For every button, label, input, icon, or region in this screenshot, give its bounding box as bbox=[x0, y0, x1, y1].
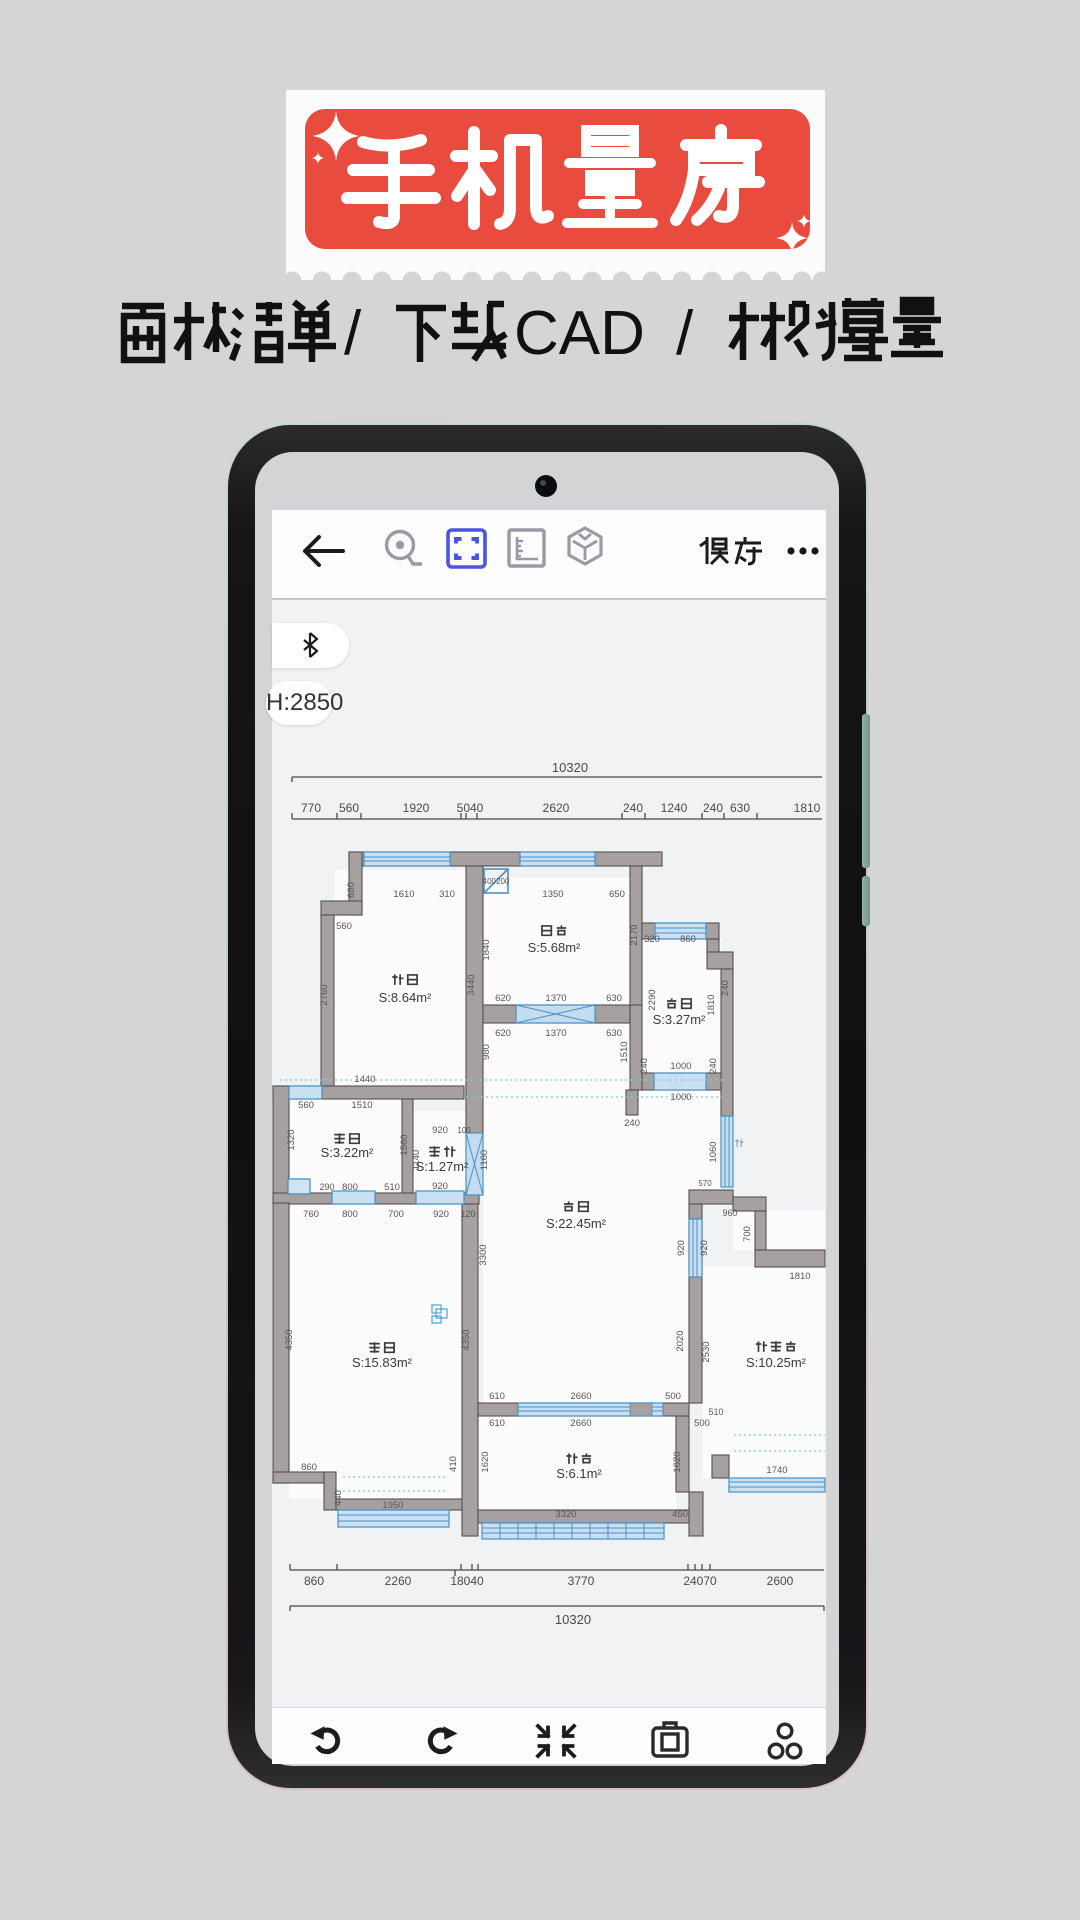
svg-text:1920: 1920 bbox=[403, 801, 430, 815]
svg-text:1060: 1060 bbox=[708, 1141, 719, 1162]
svg-text:410: 410 bbox=[448, 1456, 459, 1472]
svg-text:400200: 400200 bbox=[483, 877, 510, 886]
svg-text:S:22.45m²: S:22.45m² bbox=[546, 1216, 607, 1231]
svg-text:1810: 1810 bbox=[789, 1271, 810, 1282]
svg-text:860: 860 bbox=[304, 1574, 324, 1588]
svg-text:18040: 18040 bbox=[450, 1574, 484, 1588]
svg-text:10320: 10320 bbox=[552, 760, 588, 775]
svg-text:560: 560 bbox=[336, 921, 352, 932]
svg-text:920: 920 bbox=[432, 1125, 448, 1136]
svg-text:2020: 2020 bbox=[675, 1330, 686, 1351]
svg-text:5040: 5040 bbox=[457, 801, 484, 815]
svg-text:2290: 2290 bbox=[647, 989, 658, 1010]
svg-text:2170: 2170 bbox=[629, 924, 640, 945]
svg-text:1320: 1320 bbox=[286, 1129, 297, 1150]
svg-text:800: 800 bbox=[342, 1182, 358, 1193]
svg-text:4350: 4350 bbox=[461, 1329, 472, 1350]
svg-text:CAD: CAD bbox=[514, 299, 645, 368]
svg-text:860: 860 bbox=[301, 1462, 317, 1473]
svg-text:310: 310 bbox=[439, 889, 455, 900]
svg-text:2260: 2260 bbox=[385, 1574, 412, 1588]
svg-text:S:6.1m²: S:6.1m² bbox=[556, 1466, 602, 1481]
svg-text:/: / bbox=[676, 299, 694, 368]
svg-text:1370: 1370 bbox=[545, 1028, 566, 1039]
svg-text:630: 630 bbox=[606, 1028, 622, 1039]
svg-text:1510: 1510 bbox=[351, 1100, 372, 1111]
svg-text:24070: 24070 bbox=[683, 1574, 717, 1588]
svg-text:2660: 2660 bbox=[570, 1418, 591, 1429]
svg-text:570: 570 bbox=[698, 1179, 712, 1188]
svg-text:S:1.27m²: S:1.27m² bbox=[416, 1159, 469, 1174]
svg-text:1950: 1950 bbox=[382, 1500, 403, 1511]
svg-text:240: 240 bbox=[708, 1058, 719, 1074]
svg-text:3320: 3320 bbox=[555, 1509, 576, 1520]
svg-text:1160: 1160 bbox=[479, 1150, 490, 1170]
svg-text:S:8.64m²: S:8.64m² bbox=[379, 990, 432, 1005]
svg-text:650: 650 bbox=[609, 889, 625, 900]
svg-text:560: 560 bbox=[339, 801, 359, 815]
svg-text:700: 700 bbox=[388, 1209, 404, 1220]
svg-text:560: 560 bbox=[298, 1100, 314, 1111]
svg-text:1560: 1560 bbox=[399, 1134, 410, 1155]
svg-text:240: 240 bbox=[703, 801, 723, 815]
svg-text:240: 240 bbox=[624, 1118, 640, 1129]
svg-text:800: 800 bbox=[342, 1209, 358, 1220]
svg-text:240: 240 bbox=[623, 801, 643, 815]
svg-text:290: 290 bbox=[319, 1182, 334, 1192]
svg-text:1350: 1350 bbox=[542, 889, 563, 900]
svg-text:120: 120 bbox=[460, 1209, 475, 1219]
svg-text:620: 620 bbox=[495, 993, 511, 1004]
svg-text:3440: 3440 bbox=[466, 974, 477, 995]
svg-text:450: 450 bbox=[672, 1509, 688, 1520]
svg-text:240: 240 bbox=[720, 980, 731, 996]
svg-text:510: 510 bbox=[384, 1182, 400, 1193]
svg-text:S:3.22m²: S:3.22m² bbox=[321, 1145, 374, 1160]
svg-text:10320: 10320 bbox=[555, 1612, 591, 1627]
svg-text:960: 960 bbox=[722, 1208, 737, 1218]
svg-text:680: 680 bbox=[346, 882, 357, 898]
svg-text:920: 920 bbox=[432, 1181, 448, 1192]
svg-text:630: 630 bbox=[606, 993, 622, 1004]
svg-text:630: 630 bbox=[730, 801, 750, 815]
svg-text:620: 620 bbox=[495, 1028, 511, 1039]
svg-text:1000: 1000 bbox=[670, 1061, 691, 1072]
svg-text:500: 500 bbox=[694, 1418, 710, 1429]
svg-text:3300: 3300 bbox=[478, 1244, 489, 1265]
svg-text:920: 920 bbox=[433, 1209, 449, 1220]
svg-text:1000: 1000 bbox=[670, 1092, 691, 1103]
svg-text:240: 240 bbox=[639, 1058, 650, 1074]
svg-text:1140: 1140 bbox=[411, 1150, 422, 1170]
svg-text:510: 510 bbox=[708, 1407, 723, 1417]
svg-text:S:10.25m²: S:10.25m² bbox=[746, 1355, 807, 1370]
svg-text:980: 980 bbox=[481, 1044, 492, 1060]
svg-text:760: 760 bbox=[303, 1209, 319, 1220]
svg-text:3770: 3770 bbox=[568, 1574, 595, 1588]
svg-text:860: 860 bbox=[680, 934, 696, 945]
svg-text:1810: 1810 bbox=[706, 994, 717, 1015]
svg-text:S:5.68m²: S:5.68m² bbox=[528, 940, 581, 955]
svg-text:920: 920 bbox=[676, 1240, 687, 1256]
svg-text:2760: 2760 bbox=[319, 984, 330, 1005]
svg-text:2620: 2620 bbox=[543, 801, 570, 815]
svg-text:S:3.27m²: S:3.27m² bbox=[653, 1012, 706, 1027]
svg-text:1840: 1840 bbox=[481, 939, 492, 960]
svg-text:2600: 2600 bbox=[767, 1574, 794, 1588]
svg-text:1370: 1370 bbox=[545, 993, 566, 1004]
svg-text:440: 440 bbox=[333, 1490, 344, 1506]
svg-text:1810: 1810 bbox=[794, 801, 821, 815]
svg-text:500: 500 bbox=[665, 1391, 681, 1402]
svg-text:770: 770 bbox=[301, 801, 321, 815]
svg-text:1610: 1610 bbox=[393, 889, 414, 900]
svg-text:1620: 1620 bbox=[672, 1451, 683, 1472]
svg-text:1510: 1510 bbox=[619, 1041, 630, 1062]
svg-text:2660: 2660 bbox=[570, 1391, 591, 1402]
svg-text:2530: 2530 bbox=[701, 1341, 712, 1362]
svg-text:1740: 1740 bbox=[766, 1465, 787, 1476]
svg-text:920: 920 bbox=[699, 1240, 710, 1256]
svg-text:/: / bbox=[344, 299, 362, 368]
svg-text:4350: 4350 bbox=[284, 1329, 295, 1350]
svg-text:610: 610 bbox=[489, 1418, 505, 1429]
svg-text:700: 700 bbox=[742, 1226, 753, 1242]
svg-text:1620: 1620 bbox=[480, 1451, 491, 1472]
svg-text:100: 100 bbox=[457, 1126, 471, 1135]
svg-text:610: 610 bbox=[489, 1391, 505, 1402]
svg-text:1440: 1440 bbox=[354, 1074, 375, 1085]
svg-text:320: 320 bbox=[644, 934, 660, 945]
svg-text:S:15.83m²: S:15.83m² bbox=[352, 1355, 413, 1370]
svg-text:1240: 1240 bbox=[661, 801, 688, 815]
